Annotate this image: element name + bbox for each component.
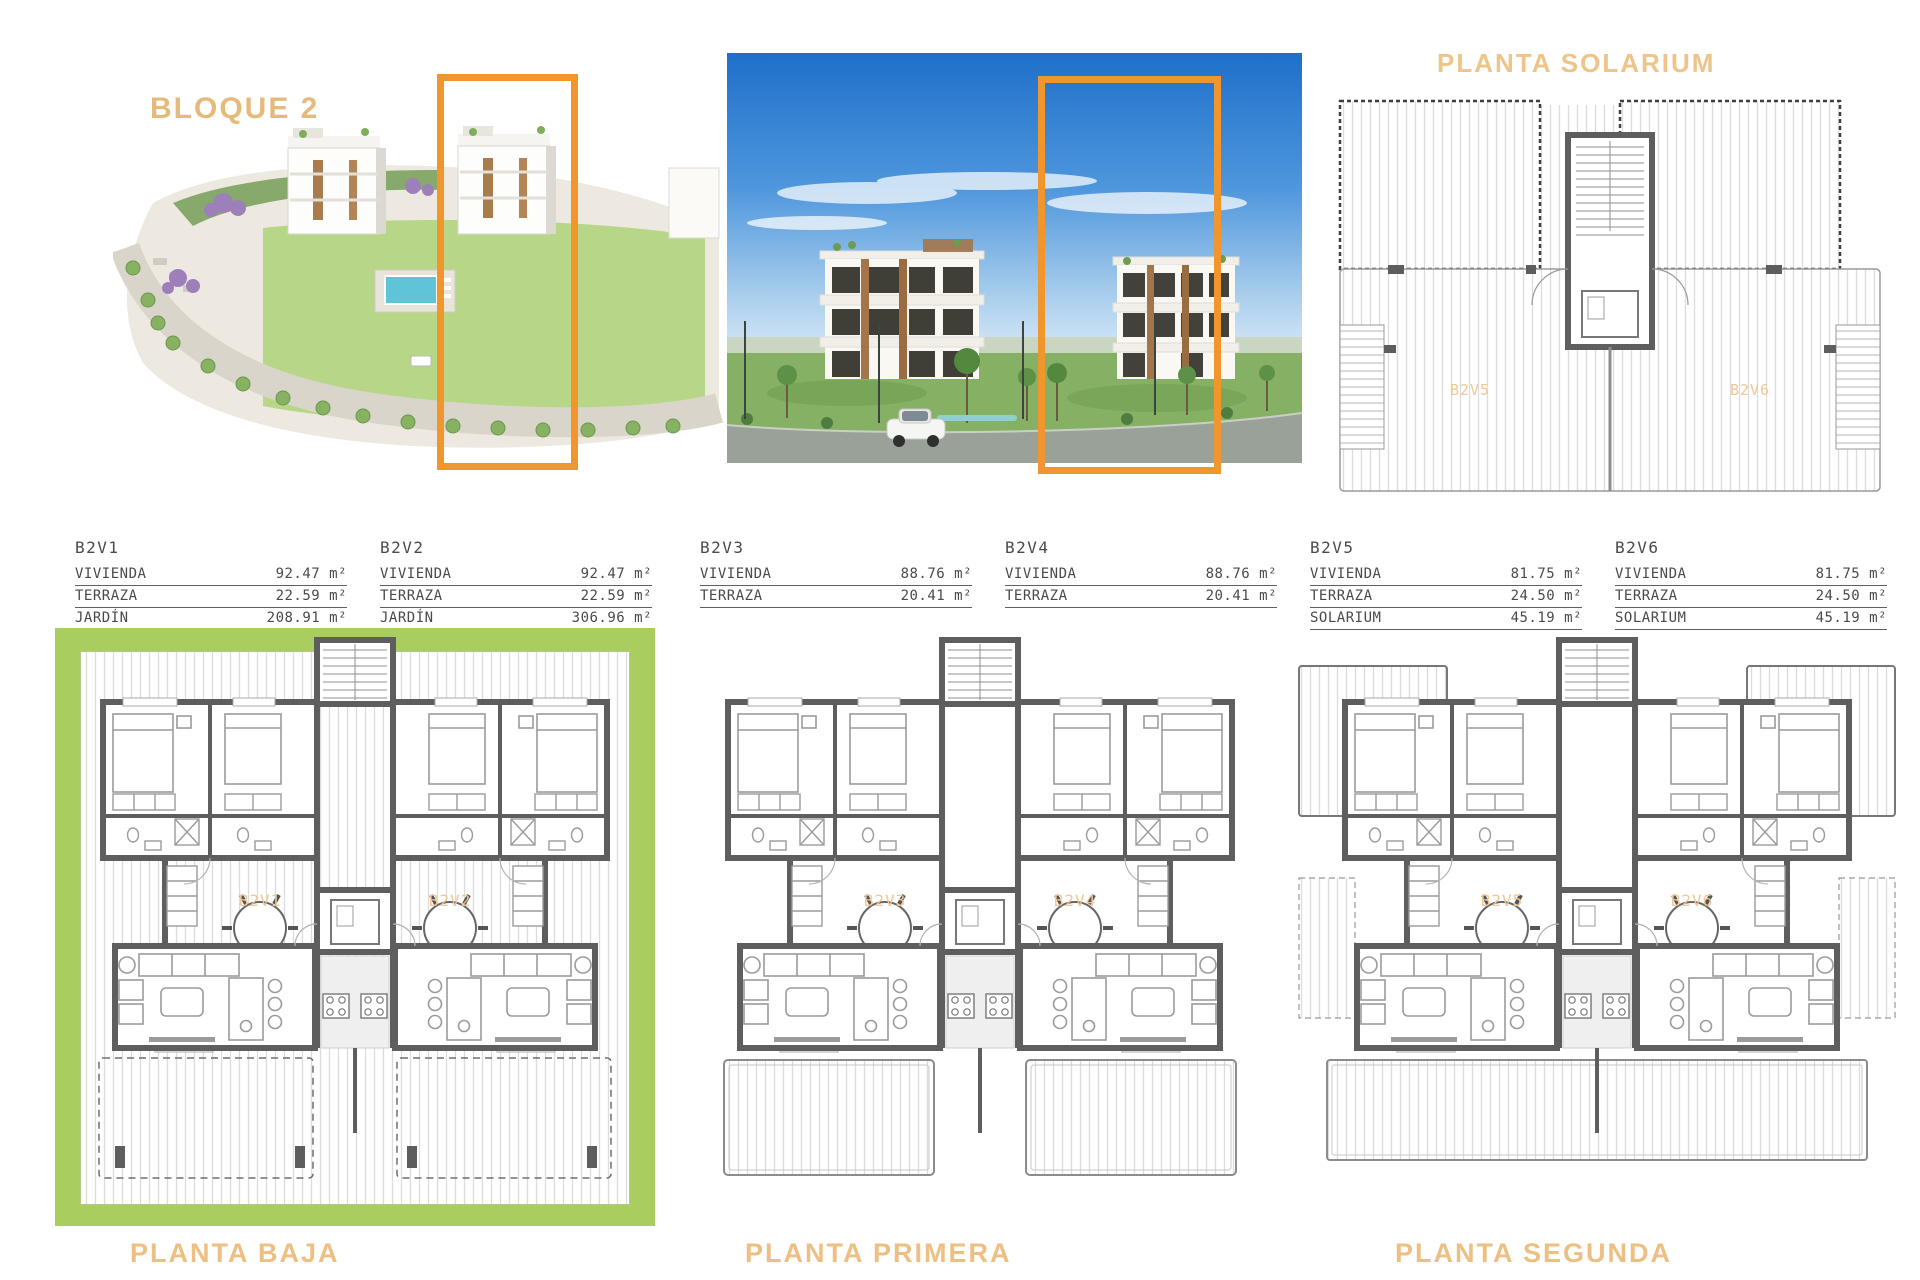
area-table-b2v2: B2V2 VIVIENDA92.47 m² TERRAZA22.59 m² JA… bbox=[380, 538, 652, 630]
stair-core bbox=[1568, 135, 1652, 347]
stair-louver-left bbox=[1340, 325, 1384, 449]
unit-id: B2V6 bbox=[1615, 538, 1887, 557]
pool bbox=[385, 276, 437, 304]
highlight-box-photo bbox=[1038, 76, 1221, 474]
unit-label: B2V4 bbox=[1054, 891, 1097, 910]
table-row: TERRAZA20.41 m² bbox=[1005, 586, 1277, 608]
table-row: TERRAZA24.50 m² bbox=[1310, 586, 1582, 608]
floor-label-primera: PLANTA PRIMERA bbox=[745, 1238, 1012, 1269]
solarium-floor-plan: B2V5 B2V6 bbox=[1330, 95, 1890, 515]
unit-label: B2V2 bbox=[429, 891, 472, 910]
area-table-b2v5: B2V5 VIVIENDA81.75 m² TERRAZA24.50 m² SO… bbox=[1310, 538, 1582, 630]
area-table-b2v4: B2V4 VIVIENDA88.76 m² TERRAZA20.41 m² bbox=[1005, 538, 1277, 608]
highlight-box-aerial bbox=[437, 74, 578, 470]
unit-id: B2V3 bbox=[700, 538, 972, 557]
unit-label: B2V6 bbox=[1671, 891, 1714, 910]
unit-label: B2V6 bbox=[1730, 381, 1770, 399]
table-row: VIVIENDA81.75 m² bbox=[1310, 564, 1582, 586]
aerial-site-render bbox=[113, 108, 725, 463]
table-row: TERRAZA20.41 m² bbox=[700, 586, 972, 608]
table-row: SOLARIUM45.19 m² bbox=[1615, 608, 1887, 630]
unit-id: B2V1 bbox=[75, 538, 347, 557]
floor-plan-segunda: B2V5 B2V6 bbox=[1297, 628, 1897, 1228]
table-row: VIVIENDA81.75 m² bbox=[1615, 564, 1887, 586]
unit-id: B2V5 bbox=[1310, 538, 1582, 557]
floor-plan-primera: B2V3 B2V4 bbox=[680, 628, 1280, 1228]
unit-id: B2V2 bbox=[380, 538, 652, 557]
unit-label: B2V5 bbox=[1450, 381, 1490, 399]
area-table-b2v6: B2V6 VIVIENDA81.75 m² TERRAZA24.50 m² SO… bbox=[1615, 538, 1887, 630]
table-row: JARDÍN306.96 m² bbox=[380, 608, 652, 630]
area-table-b2v1: B2V1 VIVIENDA92.47 m² TERRAZA22.59 m² JA… bbox=[75, 538, 347, 630]
brochure-page: BLOQUE 2 bbox=[0, 0, 1920, 1280]
table-row: VIVIENDA88.76 m² bbox=[1005, 564, 1277, 586]
unit-label: B2V5 bbox=[1481, 891, 1524, 910]
stair-louver-right bbox=[1836, 325, 1880, 449]
floor-label-baja: PLANTA BAJA bbox=[130, 1238, 340, 1269]
pool bbox=[937, 415, 1017, 421]
area-table-b2v3: B2V3 VIVIENDA88.76 m² TERRAZA20.41 m² bbox=[700, 538, 972, 608]
floor-plan-baja: B2V1 B2V2 bbox=[55, 628, 655, 1228]
table-row: VIVIENDA88.76 m² bbox=[700, 564, 972, 586]
table-row: JARDÍN208.91 m² bbox=[75, 608, 347, 630]
solarium-title: PLANTA SOLARIUM bbox=[1437, 48, 1715, 79]
table-row: VIVIENDA92.47 m² bbox=[75, 564, 347, 586]
table-row: TERRAZA24.50 m² bbox=[1615, 586, 1887, 608]
table-row: SOLARIUM45.19 m² bbox=[1310, 608, 1582, 630]
car bbox=[411, 356, 431, 366]
floor-label-segunda: PLANTA SEGUNDA bbox=[1395, 1238, 1672, 1269]
unit-label: B2V3 bbox=[864, 891, 907, 910]
building-1 bbox=[288, 128, 386, 234]
table-row: TERRAZA22.59 m² bbox=[75, 586, 347, 608]
building-3-partial bbox=[669, 168, 719, 238]
pergola-left bbox=[1340, 101, 1540, 269]
table-row: VIVIENDA92.47 m² bbox=[380, 564, 652, 586]
unit-id: B2V4 bbox=[1005, 538, 1277, 557]
table-row: TERRAZA22.59 m² bbox=[380, 586, 652, 608]
unit-label: B2V1 bbox=[239, 891, 282, 910]
